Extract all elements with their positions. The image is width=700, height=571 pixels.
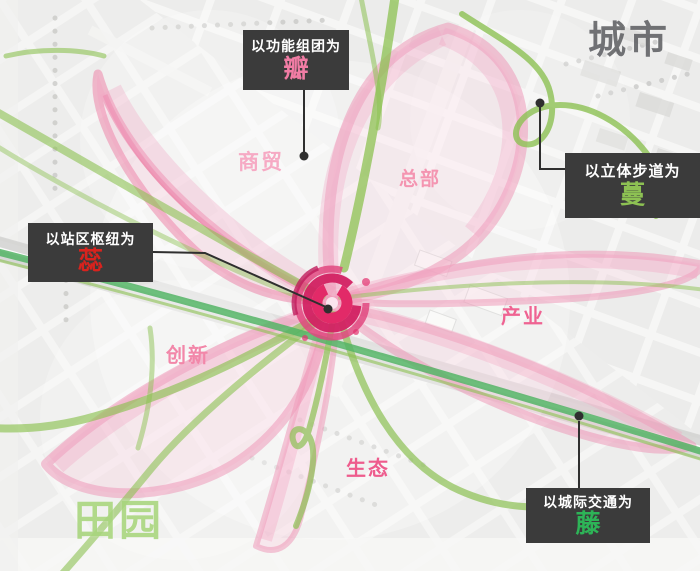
leader-dot-transit — [575, 412, 584, 421]
leader-dot-hub — [324, 305, 333, 314]
concept-diagram: 城市 田园 商贸 总部 产业 创新 生态 以功能组团为 瓣 以立体步道为 蔓 以… — [0, 0, 700, 571]
leader-dot-walkway — [536, 99, 545, 108]
leader-dot-petal — [300, 152, 309, 161]
city-map-background — [0, 0, 700, 571]
